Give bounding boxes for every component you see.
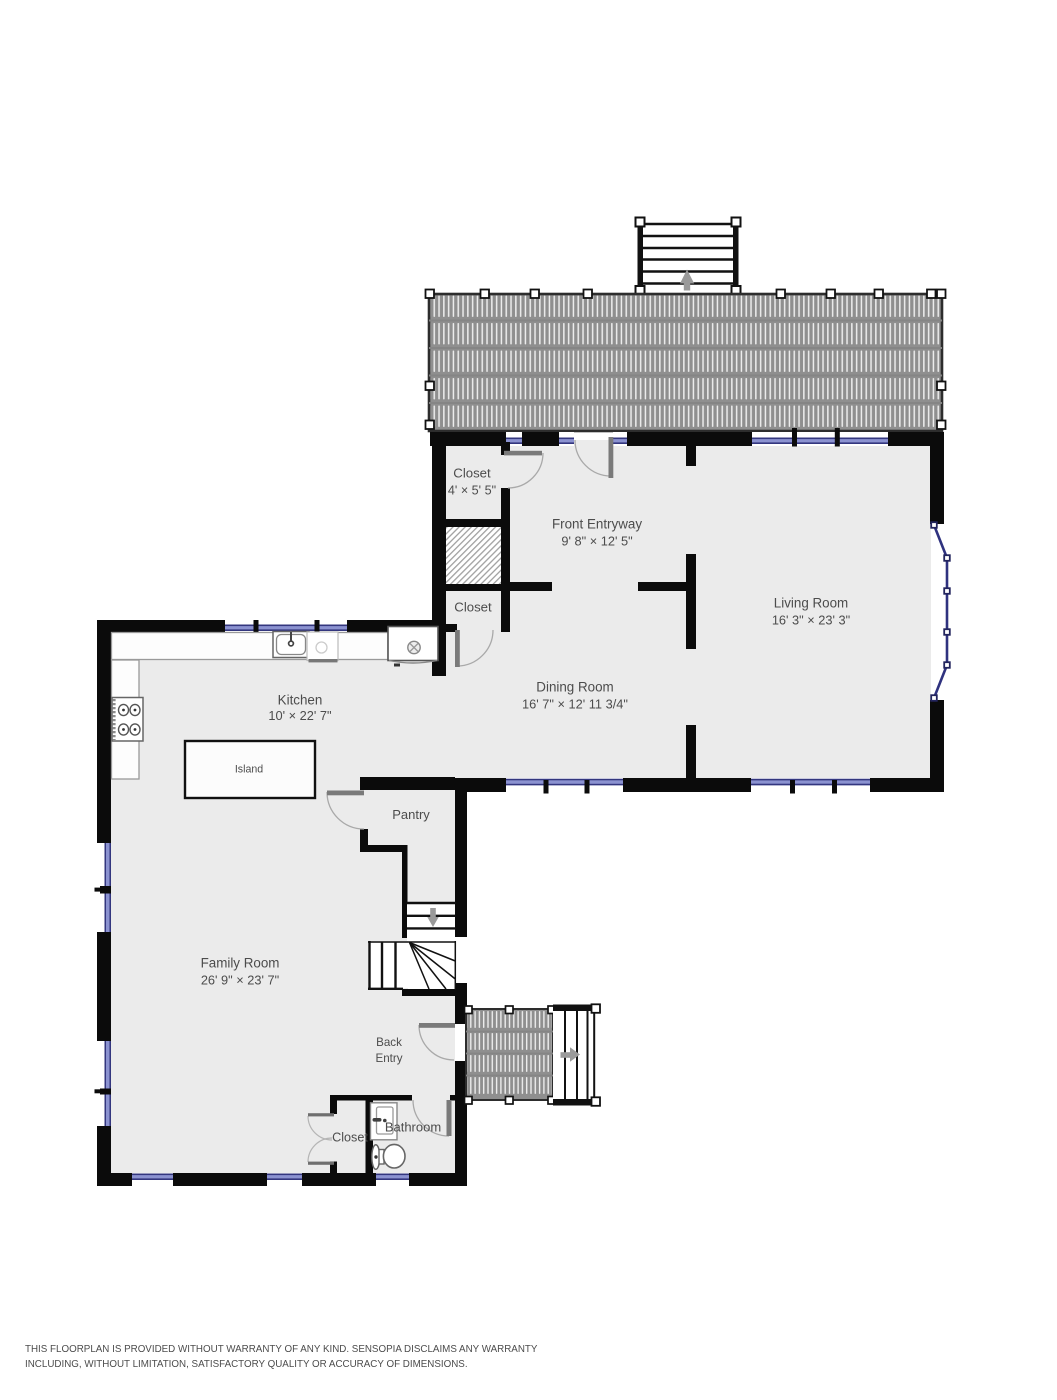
- svg-text:10' × 22' 7": 10' × 22' 7": [268, 708, 331, 723]
- svg-text:Closet: Closet: [454, 600, 492, 615]
- svg-text:Bathroom: Bathroom: [385, 1120, 441, 1135]
- svg-text:Front Entryway: Front Entryway: [552, 517, 642, 532]
- svg-text:Living Room: Living Room: [774, 596, 848, 611]
- svg-text:Dining Room: Dining Room: [536, 680, 613, 695]
- svg-text:INCLUDING, WITHOUT LIMITATION,: INCLUDING, WITHOUT LIMITATION, SATISFACT…: [25, 1359, 468, 1370]
- svg-text:Back: Back: [376, 1036, 402, 1049]
- svg-text:Closet: Closet: [453, 466, 491, 481]
- svg-text:Family Room: Family Room: [201, 956, 280, 971]
- svg-text:THIS FLOORPLAN IS PROVIDED WIT: THIS FLOORPLAN IS PROVIDED WITHOUT WARRA…: [25, 1344, 538, 1355]
- svg-text:Island: Island: [235, 764, 263, 776]
- svg-text:26' 9" × 23' 7": 26' 9" × 23' 7": [201, 973, 279, 988]
- svg-text:16' 7" × 12' 11 3/4": 16' 7" × 12' 11 3/4": [522, 697, 628, 712]
- svg-text:16' 3" × 23' 3": 16' 3" × 23' 3": [772, 613, 850, 628]
- svg-text:Kitchen: Kitchen: [278, 693, 323, 708]
- svg-text:Entry: Entry: [375, 1052, 402, 1065]
- svg-text:9' 8" × 12' 5": 9' 8" × 12' 5": [561, 534, 632, 549]
- svg-text:Pantry: Pantry: [392, 807, 430, 822]
- svg-text:Closet: Closet: [332, 1131, 368, 1145]
- svg-text:4' × 5' 5": 4' × 5' 5": [448, 484, 496, 498]
